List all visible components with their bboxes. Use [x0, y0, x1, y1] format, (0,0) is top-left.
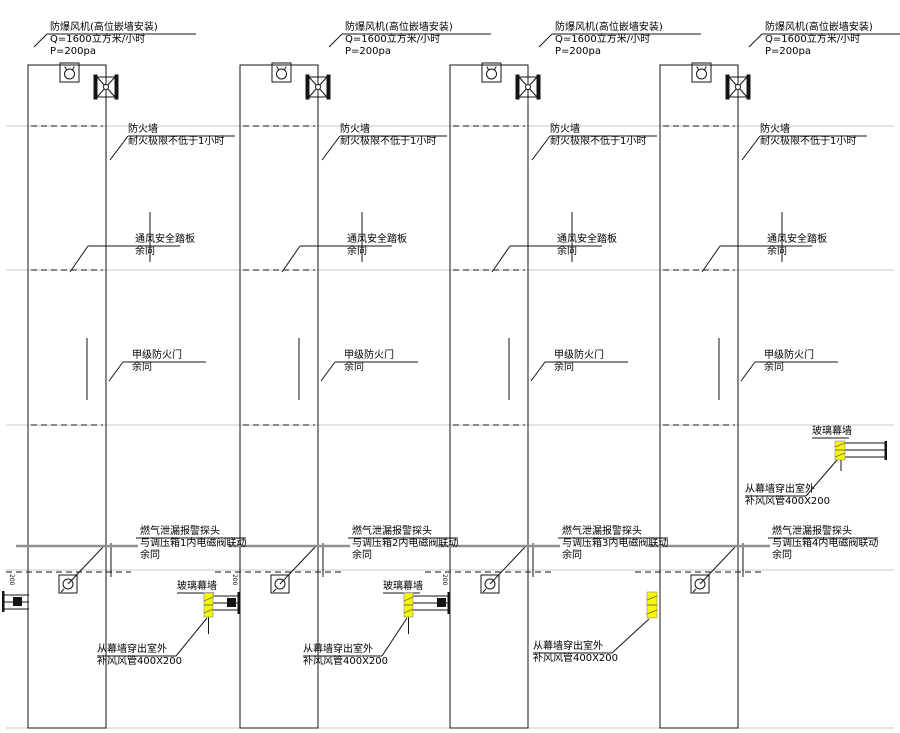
- shaft-outlines: [28, 65, 738, 728]
- duct-size-label: 200: [440, 574, 448, 585]
- fan-spec-flow: Q=1600立方米/小时: [50, 34, 158, 46]
- vent-board-annotation: 通风安全踏板 余同: [557, 234, 617, 258]
- fan-spec-pressure: P=200pa: [50, 46, 158, 58]
- vent-board-annotation: 通风安全踏板 余同: [767, 234, 827, 258]
- fan-spec-annotation: 防爆风机(高位嵌墙安装) Q=1600立方米/小时 P=200pa: [765, 22, 873, 58]
- duct-size-label: 200: [230, 574, 238, 585]
- gas-probe-annotation: 燃气泄漏报警探头 与调压箱2内电磁阀联动 余同: [352, 526, 458, 562]
- vent-board-annotation: 通风安全踏板 余同: [347, 234, 407, 258]
- hvac-shaft-diagram: 防爆风机(高位嵌墙安装) Q=1600立方米/小时 P=200pa 防火墙 耐火…: [0, 0, 900, 733]
- curtain-wall-label: 玻璃幕墙: [812, 426, 852, 438]
- fan-spec-title: 防爆风机(高位嵌墙安装): [50, 22, 158, 34]
- floor-dashed-lines: [6, 126, 763, 572]
- curtain-wall-label: 玻璃幕墙: [177, 581, 217, 593]
- firewall-annotation: 防火墙 耐火极限不低于1小时: [128, 124, 224, 148]
- fan-spec-annotation: 防爆风机(高位嵌墙安装) Q=1600立方米/小时 P=200pa: [555, 22, 663, 58]
- gas-probe-annotation: 燃气泄漏报警探头 与调压箱3内电磁阀联动 余同: [562, 526, 668, 562]
- fan-spec-annotation: 防爆风机(高位嵌墙安装) Q=1600立方米/小时 P=200pa: [345, 22, 453, 58]
- duct-exit-annotation: 从幕墙穿出室外 补风风管400X200: [533, 641, 618, 665]
- vent-board-annotation: 通风安全踏板 余同: [135, 234, 195, 258]
- fire-door-annotation: 甲级防火门 余同: [764, 350, 814, 374]
- explosion-proof-fan-icon: [94, 75, 750, 99]
- gas-probe-annotation: 燃气泄漏报警探头 与调压箱4内电磁阀联动 余同: [772, 526, 878, 562]
- curtain-wall-highlight: [204, 441, 845, 618]
- firewall-annotation: 防火墙 耐火极限不低于1小时: [550, 124, 646, 148]
- duct-exit-annotation: 从幕墙穿出室外 补风风管400X200: [745, 484, 830, 508]
- fire-door-annotation: 甲级防火门 余同: [132, 350, 182, 374]
- firewall-annotation: 防火墙 耐火极限不低于1小时: [340, 124, 436, 148]
- firewall-annotation: 防火墙 耐火极限不低于1小时: [760, 124, 856, 148]
- duct-size-label: 200: [7, 574, 15, 585]
- sensor-icon: [60, 63, 711, 82]
- curtain-wall-label: 玻璃幕墙: [383, 581, 423, 593]
- gas-probe-annotation: 燃气泄漏报警探头 与调压箱1内电磁阀联动 余同: [140, 526, 246, 562]
- fan-spec-annotation: 防爆风机(高位嵌墙安装) Q=1600立方米/小时 P=200pa: [50, 22, 158, 58]
- fire-door-annotation: 甲级防火门 余同: [554, 350, 604, 374]
- duct-exit-annotation: 从幕墙穿出室外 补风风管400X200: [97, 644, 182, 668]
- fire-door-annotation: 甲级防火门 余同: [344, 350, 394, 374]
- duct-exit-annotation: 从幕墙穿出室外 补风风管400X200: [303, 644, 388, 668]
